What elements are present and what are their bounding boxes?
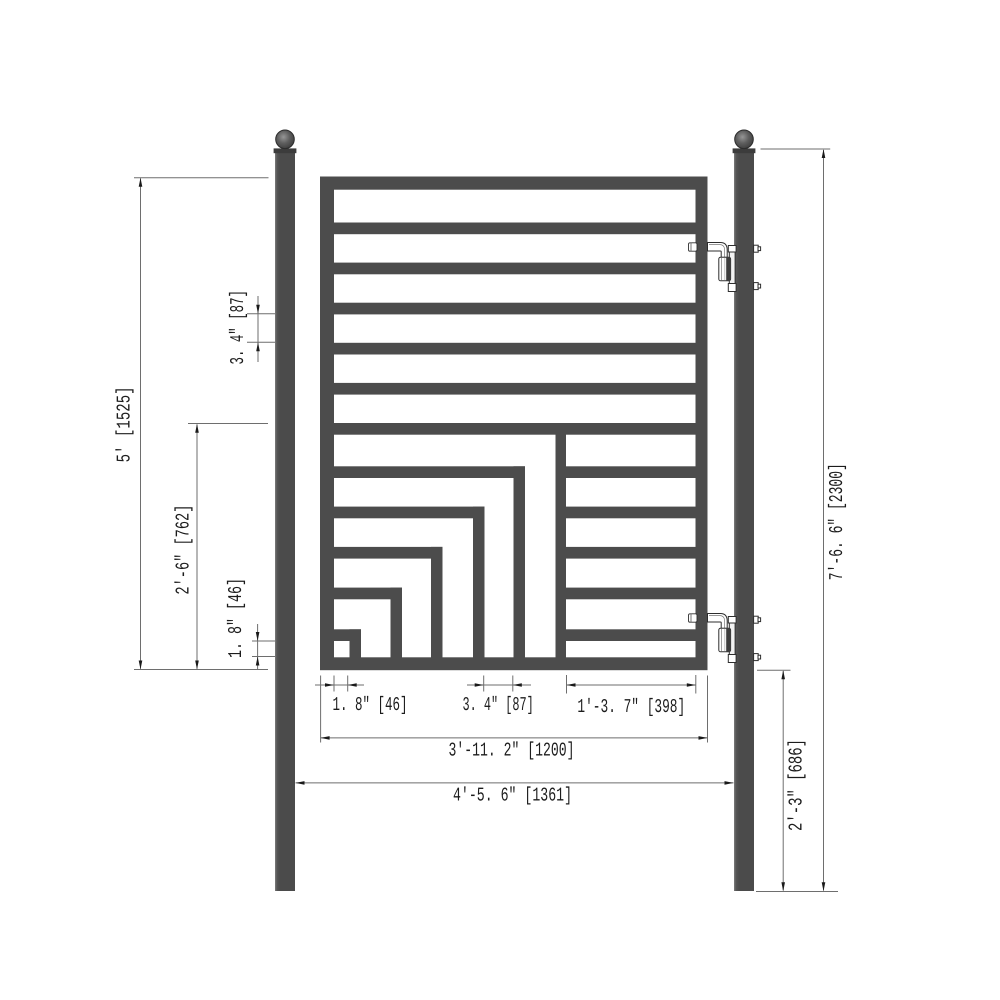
svg-text:7'-6. 6" [2300]: 7'-6. 6" [2300] — [826, 463, 848, 580]
svg-text:1. 8" [46]: 1. 8" [46] — [225, 578, 247, 658]
svg-text:3'-11. 2" [1200]: 3'-11. 2" [1200] — [449, 740, 575, 762]
svg-text:2'-6" [762]: 2'-6" [762] — [173, 505, 195, 595]
svg-text:3. 4" [87]: 3. 4" [87] — [463, 694, 534, 716]
svg-text:3. 4" [87]: 3. 4" [87] — [227, 290, 249, 365]
svg-text:5' [1525]: 5' [1525] — [114, 386, 136, 462]
svg-text:1. 8" [46]: 1. 8" [46] — [333, 694, 408, 716]
svg-text:2'-3" [686]: 2'-3" [686] — [786, 739, 808, 831]
svg-text:1'-3. 7" [398]: 1'-3. 7" [398] — [577, 696, 685, 718]
svg-text:4'-5. 6" [1361]: 4'-5. 6" [1361] — [453, 785, 572, 807]
